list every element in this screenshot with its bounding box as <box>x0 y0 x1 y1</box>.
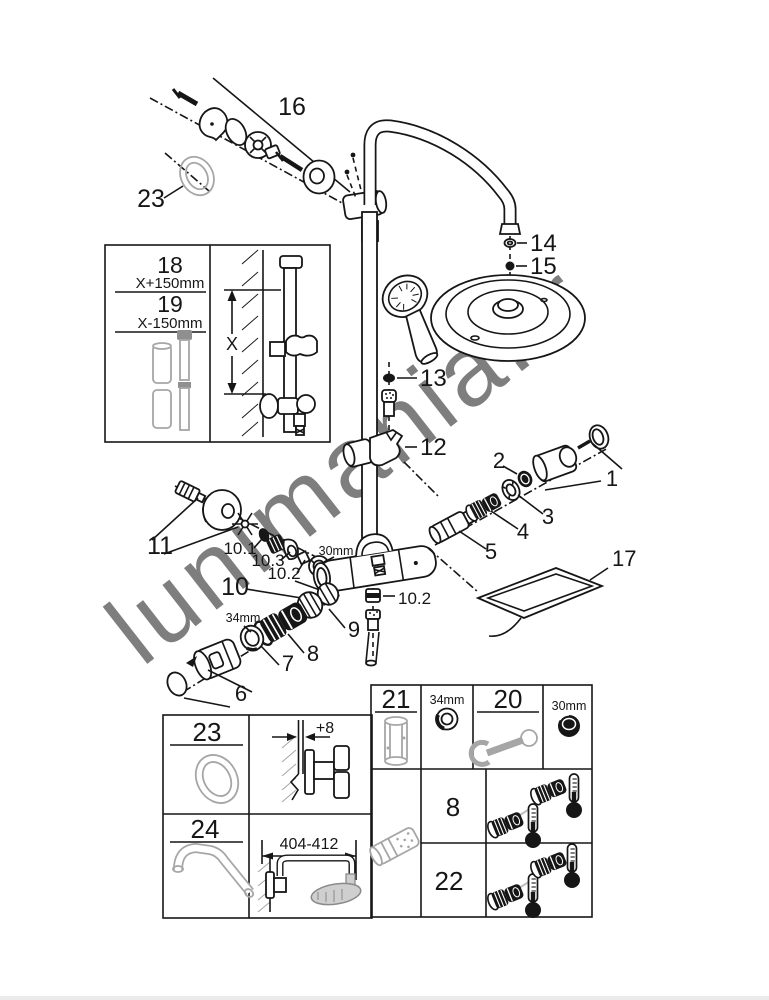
seal-ring-23-icon <box>188 748 247 811</box>
callout-10: 10 <box>221 573 249 601</box>
table-dim-30mm: 30mm <box>552 699 587 713</box>
table-callout-24: 24 <box>191 814 220 844</box>
head-shower-icon <box>310 874 363 908</box>
parts-diagram-page: lunimania.fr 16 23 <box>0 0 769 1000</box>
dim-plus8: +8 <box>316 720 334 737</box>
wrench-icon <box>471 730 537 764</box>
escutcheon-rosette <box>304 161 335 194</box>
callout-3: 3 <box>542 504 554 529</box>
callout-23: 23 <box>137 185 165 213</box>
dim-18: X+150mm <box>136 275 205 292</box>
table-callout-20: 20 <box>494 684 523 714</box>
coupler-icon <box>368 826 421 867</box>
callout-15: 15 <box>530 253 557 280</box>
callout-4: 4 <box>517 519 529 544</box>
arm-length-drawing: 404-412 <box>258 836 362 912</box>
cartridge-21-icon <box>385 717 407 765</box>
offset-plus8-drawing: +8 <box>272 720 349 802</box>
callout-12: 12 <box>420 434 447 461</box>
table-callout-21: 21 <box>382 684 411 714</box>
seal-ring-23 <box>173 151 220 201</box>
callout-1: 1 <box>606 466 618 491</box>
cartridge-thermo-set-22 <box>486 844 580 918</box>
dim-404-412: 404-412 <box>280 836 339 853</box>
callout-9: 9 <box>348 617 360 642</box>
callout-16: 16 <box>278 93 306 121</box>
callout-8: 8 <box>307 641 319 666</box>
callout-17: 17 <box>612 546 636 571</box>
callout-6: 6 <box>235 681 247 706</box>
filter-below <box>366 610 380 630</box>
assembly-16-wall-union: 16 23 <box>137 78 388 241</box>
ring-34mm-icon <box>434 706 461 733</box>
table-right: 21 34mm 20 30mm 8 <box>368 684 592 918</box>
dim-34mm: 34mm <box>226 611 261 625</box>
dim-x-label: X <box>226 334 238 354</box>
dim-19: X-150mm <box>137 315 202 332</box>
table-callout-8: 8 <box>446 792 460 822</box>
rail-tube-long <box>153 343 171 428</box>
table-left: 23 +8 24 <box>163 715 372 918</box>
rail-tube-short <box>177 330 192 430</box>
gasket-part-13 <box>383 374 395 383</box>
check-valve-10-2: 10.2 <box>366 588 431 666</box>
inset-rail-length-box: 18 X+150mm 19 X-150mm <box>105 245 330 442</box>
arm-outlet-flare <box>500 224 520 234</box>
shower-arm-24-icon <box>173 848 255 899</box>
dim-30mm: 30mm <box>319 544 354 558</box>
inset-glide-holder <box>270 336 317 356</box>
soap-dish-17: 17 <box>428 546 636 636</box>
callout-7: 7 <box>282 651 294 676</box>
callout-11: 11 <box>147 532 173 560</box>
cartridge-thermo-set-8 <box>486 774 582 848</box>
callout-2: 2 <box>493 448 505 473</box>
exploded-parts-diagram: lunimania.fr 16 23 <box>0 0 769 1000</box>
callout-5: 5 <box>485 539 497 564</box>
overhead-shower-head <box>431 275 585 361</box>
table-dim-34mm: 34mm <box>430 693 465 707</box>
callout-19: 19 <box>157 291 183 317</box>
nut-30mm-icon <box>558 715 580 737</box>
connector-screw-11 <box>175 481 207 505</box>
table-callout-22: 22 <box>435 866 464 896</box>
callout-10-2: 10.2 <box>267 564 300 583</box>
screw-icon <box>173 89 197 104</box>
valve-piece <box>245 132 280 159</box>
shower-arm-and-head: 14 15 <box>370 126 585 368</box>
callout-10-2-right: 10.2 <box>398 589 431 608</box>
washer-part-14 <box>505 239 516 247</box>
wall-hatching <box>242 250 258 436</box>
filter-insert <box>382 390 396 416</box>
table-callout-23: 23 <box>193 717 222 747</box>
callout-13: 13 <box>420 365 447 392</box>
union-side-view <box>305 746 349 798</box>
bottom-edge-bar <box>0 996 769 1000</box>
gasket-part-15 <box>506 262 515 271</box>
